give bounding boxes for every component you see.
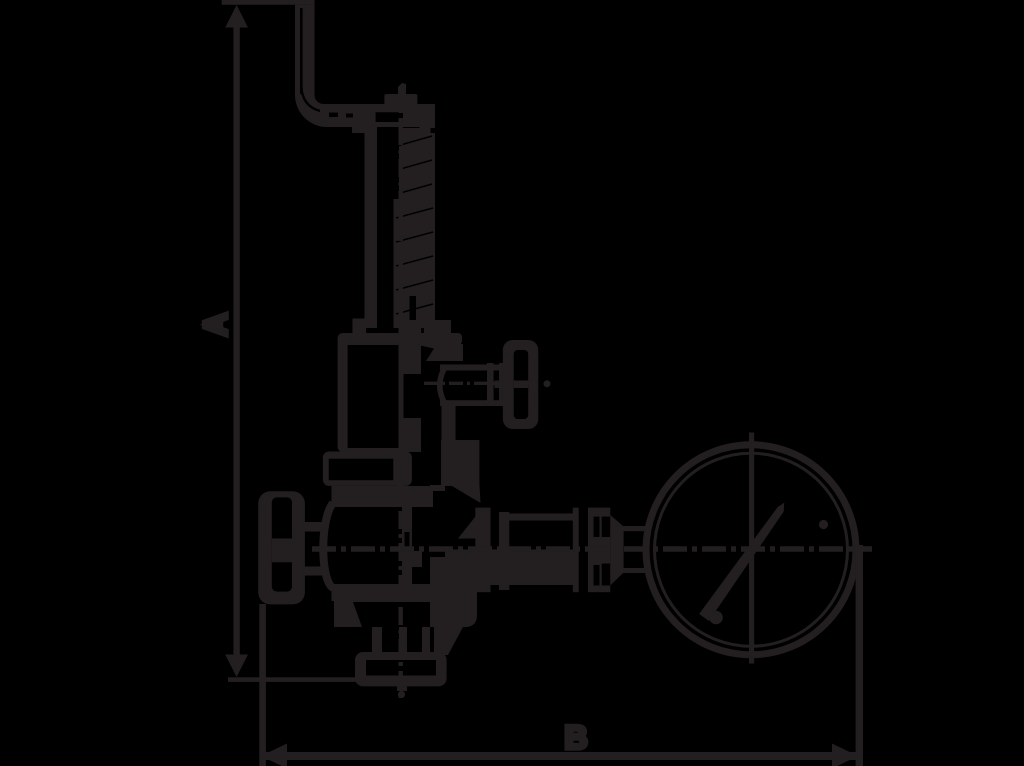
svg-text:A: A bbox=[198, 313, 234, 336]
svg-text:B: B bbox=[564, 720, 587, 756]
